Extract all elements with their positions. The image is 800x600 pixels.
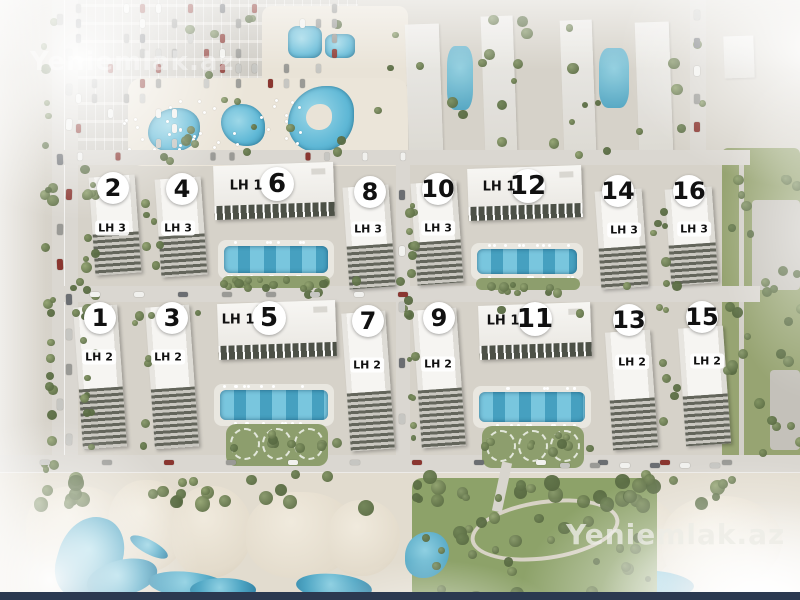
tree	[497, 137, 507, 147]
tower-facade	[683, 394, 731, 447]
umbrella	[234, 241, 237, 244]
tree	[787, 422, 795, 430]
tree	[83, 409, 91, 417]
tree	[673, 384, 681, 392]
building-7-number: 7	[352, 305, 384, 337]
tree	[659, 359, 667, 367]
umbrella	[277, 241, 280, 244]
tree	[291, 470, 300, 479]
umbrella	[536, 244, 539, 247]
tree	[623, 282, 631, 290]
umbrella	[267, 128, 270, 131]
car	[57, 399, 63, 410]
tree	[557, 439, 567, 449]
building-9-type-badge: LH 2	[421, 357, 455, 372]
tree	[322, 471, 333, 482]
car	[310, 292, 320, 297]
tree	[374, 107, 381, 114]
building-1-number: 1	[84, 302, 116, 334]
residential-tower	[605, 330, 658, 451]
tree	[586, 445, 593, 452]
tree	[514, 290, 520, 296]
building-9-number: 9	[423, 302, 455, 334]
umbrella	[260, 116, 263, 119]
umbrella	[291, 101, 294, 104]
building-13-type-badge: LH 2	[615, 355, 649, 370]
tree	[410, 422, 417, 429]
slab-facade	[479, 342, 591, 360]
tree	[422, 534, 431, 543]
umbrella	[272, 385, 275, 388]
tree	[72, 309, 80, 317]
slab-facade	[219, 342, 337, 360]
tree	[268, 430, 277, 439]
tree	[662, 374, 671, 383]
umbrella	[260, 385, 263, 388]
car	[57, 224, 63, 235]
car	[401, 153, 406, 161]
car	[66, 294, 72, 305]
slab-facade	[468, 203, 582, 221]
car	[300, 79, 305, 88]
tree	[411, 435, 416, 440]
tree	[81, 262, 92, 273]
umbrella	[247, 385, 250, 388]
car	[268, 79, 273, 88]
tree	[135, 311, 145, 321]
tree	[492, 546, 499, 553]
umbrella	[301, 385, 304, 388]
tree	[396, 277, 405, 286]
building-3-number: 3	[156, 302, 188, 334]
tree	[80, 337, 87, 344]
lazy-river-island	[306, 104, 332, 130]
car	[354, 292, 364, 297]
building-2-type-badge: LH 3	[95, 221, 129, 236]
umbrella	[269, 241, 272, 244]
tree	[46, 354, 54, 362]
building-13-number: 13	[613, 304, 645, 336]
tree	[456, 533, 468, 545]
tree	[47, 309, 55, 317]
tree	[549, 138, 559, 148]
tree	[91, 249, 100, 258]
building-15-number: 15	[686, 301, 718, 333]
tree	[423, 470, 437, 484]
tree	[317, 442, 326, 451]
tree	[659, 417, 668, 426]
umbrella	[273, 105, 276, 108]
building-16-number: 16	[673, 175, 705, 207]
car	[399, 358, 405, 368]
tree	[405, 311, 410, 316]
tree	[230, 444, 238, 452]
tree	[234, 279, 243, 288]
tree	[269, 281, 277, 289]
tree	[405, 208, 415, 218]
tree	[660, 208, 668, 216]
tree	[413, 480, 423, 490]
tree	[244, 284, 252, 292]
building-8-type-badge: LH 3	[351, 222, 385, 237]
tree	[246, 475, 257, 486]
tree	[404, 296, 412, 304]
tree	[337, 136, 346, 145]
building-8-number: 8	[354, 176, 386, 208]
tree	[495, 494, 502, 501]
umbrella	[543, 387, 546, 390]
car	[412, 460, 422, 465]
building-5-type-badge: LH 1	[219, 313, 258, 328]
umbrella	[302, 241, 305, 244]
tower-facade	[669, 242, 719, 285]
tree	[76, 278, 84, 286]
car	[66, 364, 72, 375]
tree	[410, 395, 416, 401]
tree	[70, 285, 77, 292]
tree	[352, 276, 362, 286]
tree	[142, 242, 150, 250]
tree	[406, 228, 413, 235]
fog	[600, 500, 800, 600]
tower-facade	[93, 231, 142, 275]
tree	[333, 147, 343, 157]
car	[178, 292, 188, 297]
building-4-number: 4	[166, 173, 198, 205]
tower-facade	[159, 233, 208, 277]
tree	[300, 285, 307, 292]
car	[57, 259, 63, 270]
umbrella	[298, 106, 301, 109]
building-16-type-badge: LH 3	[677, 222, 711, 237]
tree	[45, 382, 54, 391]
building-10-number: 10	[422, 173, 454, 205]
building-11-type-badge: LH 1	[484, 314, 523, 329]
roof-unit	[559, 171, 573, 177]
tree	[83, 256, 89, 262]
building-1-type-badge: LH 2	[82, 350, 116, 365]
tower-facade	[610, 398, 658, 451]
car	[350, 460, 360, 465]
bottom-edge-bar	[0, 592, 800, 600]
building-3-type-badge: LH 2	[151, 350, 185, 365]
car	[363, 153, 368, 161]
courtyard-pool	[224, 246, 328, 273]
tower-facade	[418, 387, 466, 448]
tree	[47, 339, 55, 347]
building-14-number: 14	[602, 175, 634, 207]
tree	[410, 203, 416, 209]
tree	[595, 100, 601, 106]
building-11-number: 11	[518, 302, 552, 336]
tree	[458, 110, 468, 120]
building-14-type-badge: LH 3	[607, 223, 641, 238]
car	[306, 153, 311, 161]
car	[398, 292, 408, 297]
tree	[476, 517, 487, 528]
tree	[497, 100, 507, 110]
fog	[720, 60, 800, 400]
car	[474, 460, 484, 465]
car	[399, 414, 405, 424]
car	[66, 329, 72, 340]
roof-unit	[313, 306, 327, 312]
tree	[283, 276, 291, 284]
tree	[447, 97, 458, 108]
tree	[220, 280, 228, 288]
roof-unit	[311, 168, 325, 174]
umbrella	[235, 385, 238, 388]
tree	[650, 230, 657, 237]
car	[399, 190, 405, 200]
tree	[767, 416, 776, 425]
tower-facade	[347, 390, 395, 451]
tower-facade	[415, 240, 464, 286]
tree	[152, 261, 161, 270]
tree	[283, 495, 297, 509]
car	[399, 302, 405, 312]
car	[399, 246, 405, 256]
tree	[245, 277, 252, 284]
car	[90, 292, 100, 297]
building-4-type-badge: LH 3	[161, 221, 195, 236]
fog-left	[0, 0, 46, 600]
tree	[511, 78, 517, 84]
umbrella	[567, 244, 570, 247]
tree	[489, 512, 500, 523]
umbrella	[548, 244, 551, 247]
tree	[195, 310, 201, 316]
tree	[663, 307, 669, 313]
tree	[548, 447, 558, 457]
car	[226, 460, 236, 465]
umbrella	[299, 131, 302, 134]
site-plan-render: Yeniemlak.az Yeniemlak.az 1LH 22LH 33LH …	[0, 0, 800, 600]
tree	[408, 251, 417, 260]
tree	[670, 392, 678, 400]
tree	[499, 282, 509, 292]
building-6-type-badge: LH 1	[227, 179, 266, 194]
tree	[527, 442, 535, 450]
tree	[295, 443, 305, 453]
car	[134, 292, 144, 297]
building-7-type-badge: LH 2	[350, 358, 384, 373]
tree	[332, 438, 342, 448]
courtyard-pool	[220, 390, 328, 420]
courtyard-pool	[479, 392, 585, 422]
tree	[520, 283, 529, 292]
tree	[148, 312, 155, 319]
building-15-type-badge: LH 2	[690, 354, 724, 369]
tree	[84, 234, 92, 242]
umbrella	[299, 241, 302, 244]
umbrella	[223, 385, 226, 388]
tree	[407, 357, 412, 362]
car	[288, 460, 298, 465]
tree	[156, 241, 164, 249]
tree	[319, 280, 327, 288]
car	[325, 153, 330, 161]
tree	[410, 241, 420, 251]
tree	[576, 309, 584, 317]
tree	[132, 320, 138, 326]
building-12-type-badge: LH 1	[480, 180, 519, 195]
tree	[50, 297, 56, 303]
car	[266, 292, 276, 297]
tree	[795, 437, 800, 447]
tree	[358, 500, 374, 516]
tree	[407, 269, 416, 278]
car	[284, 79, 289, 88]
courtyard-pool	[477, 249, 577, 274]
building-2-number: 2	[97, 172, 129, 204]
car	[222, 292, 232, 297]
tree	[603, 147, 611, 155]
tree	[672, 281, 682, 291]
building-10-type-badge: LH 3	[421, 221, 455, 236]
umbrella	[522, 244, 525, 247]
